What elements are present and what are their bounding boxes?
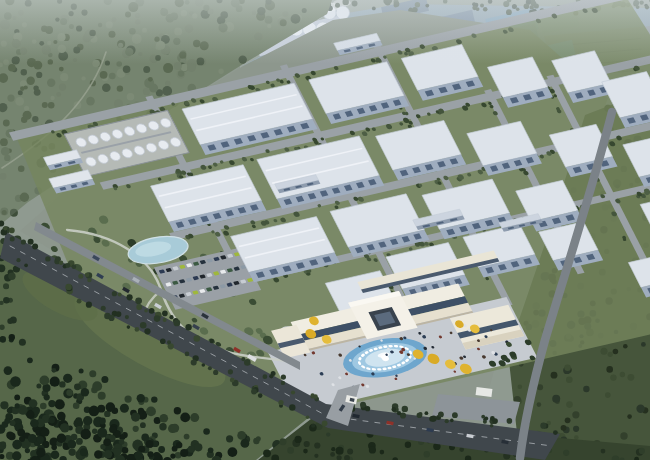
tree-dot [244, 359, 251, 366]
tree-dot [263, 449, 271, 457]
tree-dot [627, 414, 632, 419]
tree-dot [331, 447, 335, 451]
tree-dot [16, 258, 20, 262]
tree-dot [551, 372, 558, 379]
tree-dot [553, 430, 558, 435]
tree-dot [92, 381, 102, 391]
tree-dot [158, 446, 165, 453]
tree-dot [94, 450, 102, 458]
tree-dot [169, 315, 173, 319]
tree-dot [138, 408, 144, 414]
tree-dot [112, 291, 117, 296]
tree-dot [89, 370, 96, 377]
tree-dot [89, 406, 100, 417]
tree-dot [251, 389, 257, 395]
tree-dot [7, 318, 13, 324]
tree-dot [180, 413, 190, 423]
tree-dot [174, 320, 181, 327]
tree-dot [641, 342, 646, 347]
tree-dot [146, 440, 154, 448]
tree-dot [566, 401, 573, 408]
tree-dot [425, 411, 429, 415]
tree-dot [174, 407, 181, 414]
tree-dot [326, 433, 330, 437]
tree-dot [137, 394, 145, 402]
tree-dot [0, 401, 8, 409]
tree-dot [25, 448, 30, 453]
tree-dot [360, 402, 366, 408]
tree-dot [19, 436, 25, 442]
tree-dot [419, 412, 423, 416]
tree-dot [86, 302, 92, 308]
tree-dot [69, 449, 76, 456]
tree-dot [9, 228, 15, 234]
tree-dot [564, 364, 571, 371]
tree-dot [507, 418, 513, 424]
tree-dot [73, 402, 80, 409]
tree-dot [80, 448, 88, 456]
tree-dot [237, 431, 246, 440]
tree-dot [369, 446, 376, 453]
tree-dot [185, 324, 191, 330]
tree-dot [75, 417, 82, 424]
tree-dot [620, 372, 625, 377]
tree-dot [92, 429, 97, 434]
tree-dot [606, 366, 613, 373]
tree-dot [452, 412, 458, 418]
tree-dot [230, 378, 235, 383]
tree-dot [628, 374, 635, 381]
tree-dot [120, 404, 129, 413]
tree-dot [3, 283, 9, 289]
tree-dot [636, 405, 644, 413]
tree-dot [65, 284, 71, 290]
tree-dot [140, 322, 147, 329]
tree-dot [14, 395, 20, 401]
tree-dot [10, 420, 16, 426]
tree-dot [203, 428, 210, 435]
tree-dot [74, 383, 81, 390]
tree-dot [583, 386, 589, 392]
tree-dot [397, 411, 401, 415]
tree-dot [101, 306, 106, 311]
tree-dot [59, 381, 65, 387]
tree-dot [210, 339, 214, 343]
tree-dot [279, 438, 286, 445]
tree-dot [4, 366, 13, 375]
tree-dot [256, 436, 261, 441]
tree-dot [9, 334, 15, 340]
tree-dot [15, 403, 20, 408]
tree-dot [108, 315, 114, 321]
tree-dot [303, 449, 308, 454]
tree-dot [608, 352, 613, 357]
tree-dot [159, 423, 166, 430]
tree-dot [36, 448, 45, 457]
tree-dot [601, 449, 606, 454]
tree-dot [228, 447, 238, 457]
tree-dot [113, 448, 121, 456]
tree-dot [160, 339, 166, 345]
tree-dot [140, 422, 146, 428]
tree-dot [119, 439, 125, 445]
tree-dot [314, 442, 320, 448]
tree-dot [125, 396, 132, 403]
tree-dot [103, 439, 111, 447]
tree-dot [336, 447, 344, 455]
tree-dot [21, 239, 26, 244]
aerial-render-image [0, 0, 650, 460]
tree-dot [52, 368, 57, 373]
tree-dot [24, 263, 28, 267]
tree-dot [135, 327, 140, 332]
tree-dot [6, 432, 13, 439]
tree-dot [191, 359, 197, 365]
tree-dot [147, 451, 153, 457]
tree-dot [85, 273, 90, 278]
tree-dot [127, 325, 131, 329]
tree-dot [566, 376, 573, 383]
tree-dot [26, 411, 34, 419]
tree-dot [81, 388, 89, 396]
tree-dot [347, 449, 353, 455]
tree-dot [134, 451, 143, 460]
tree-dot [106, 402, 116, 412]
tree-dot [1, 442, 6, 447]
tree-dot [76, 438, 83, 445]
tree-dot [208, 448, 214, 454]
tree-dot [185, 352, 190, 357]
tree-dot [66, 390, 73, 397]
tree-dot [27, 357, 33, 363]
tree-dot [149, 308, 155, 314]
tree-dot [287, 447, 294, 454]
tree-dot [573, 426, 579, 432]
tree-dot [131, 413, 140, 422]
tree-dot [45, 256, 50, 261]
tree-dot [281, 381, 285, 385]
tree-dot [87, 278, 91, 282]
tree-dot [281, 375, 286, 380]
tree-dot [429, 416, 435, 422]
tree-dot [291, 390, 295, 394]
tree-dot [116, 311, 122, 317]
tree-dot [537, 384, 543, 390]
tree-dot [392, 407, 397, 412]
tree-dot [295, 436, 302, 443]
tree-dot [57, 434, 66, 443]
tree-dot [144, 328, 150, 334]
tree-dot [8, 273, 15, 280]
tree-dot [83, 416, 92, 425]
tree-dot [136, 304, 142, 310]
tree-dot [202, 363, 206, 367]
tree-dot [537, 402, 542, 407]
tree-dot [561, 425, 567, 431]
tree-dot [365, 406, 370, 411]
tree-dot [623, 344, 628, 349]
tree-dot [60, 423, 68, 431]
tree-dot [402, 406, 408, 412]
tree-dot [405, 442, 411, 448]
tree-dot [306, 416, 310, 420]
tree-dot [226, 435, 233, 442]
tree-dot [380, 450, 385, 455]
tree-dot [492, 418, 498, 424]
tree-dot [59, 261, 63, 265]
tree-dot [78, 274, 83, 279]
tree-dot [565, 417, 571, 423]
tree-dot [19, 339, 26, 346]
tree-dot [99, 418, 106, 425]
tree-dot [4, 418, 10, 424]
tree-dot [48, 400, 55, 407]
tree-dot [66, 263, 71, 268]
tree-dot [125, 315, 129, 319]
tree-dot [314, 454, 318, 458]
tree-dot [639, 448, 645, 454]
tree-dot [610, 374, 616, 380]
tree-dot [540, 423, 546, 429]
tree-dot [41, 428, 50, 437]
tree-dot [135, 297, 142, 304]
tree-dot [445, 419, 449, 423]
tree-dot [330, 452, 335, 457]
tree-dot [188, 445, 195, 452]
tree-dot [572, 411, 579, 418]
tree-dot [67, 440, 76, 449]
tree-dot [228, 369, 233, 374]
tree-dot [269, 374, 273, 378]
tree-dot [574, 435, 579, 440]
tree-dot [55, 399, 65, 409]
tree-dot [77, 299, 82, 304]
tree-dot [194, 335, 201, 342]
tree-dot [109, 426, 116, 433]
tree-dot [151, 396, 157, 402]
tree-dot [518, 384, 523, 389]
tree-dot [620, 432, 627, 439]
tree-dot [313, 394, 318, 399]
tree-dot [81, 429, 91, 439]
tree-dot [258, 393, 263, 398]
tree-dot [28, 239, 34, 245]
tree-dot [3, 297, 10, 304]
scene-canvas [0, 0, 650, 460]
tree-dot [36, 383, 41, 388]
tree-dot [170, 454, 175, 459]
tree-dot [144, 309, 148, 313]
tree-dot [311, 423, 315, 427]
tree-dot [118, 293, 122, 297]
tree-dot [101, 376, 108, 383]
tree-dot [162, 311, 168, 317]
tree-dot [278, 400, 283, 405]
tree-dot [172, 446, 178, 452]
tree-dot [44, 394, 50, 400]
tree-dot [72, 264, 77, 269]
tree-dot [63, 374, 72, 383]
tree-dot [104, 450, 112, 458]
tree-dot [483, 420, 487, 424]
tree-dot [613, 349, 619, 355]
tree-dot [57, 412, 66, 421]
tree-dot [304, 441, 310, 447]
tree-dot [322, 420, 328, 426]
tree-dot [51, 445, 57, 451]
tree-dot [208, 366, 212, 370]
tree-dot [190, 413, 199, 422]
tree-dot [133, 426, 139, 432]
tree-dot [241, 439, 250, 448]
tree-dot [98, 392, 106, 400]
tree-dot [49, 417, 55, 423]
tree-dot [171, 424, 180, 433]
tree-dot [154, 315, 161, 322]
tree-dot [160, 414, 169, 423]
tree-dot [438, 412, 444, 418]
tree-dot [122, 447, 128, 453]
tree-dot [459, 447, 464, 452]
tree-dot [28, 434, 37, 443]
tree-dot [37, 436, 44, 443]
tree-dot [289, 404, 295, 410]
tree-dot [30, 419, 39, 428]
tree-dot [424, 451, 430, 457]
tree-dot [605, 392, 611, 398]
tree-dot [40, 403, 47, 410]
atmosphere-fog [0, 0, 650, 64]
tree-dot [490, 424, 494, 428]
tree-dot [552, 395, 560, 403]
tree-dot [10, 376, 21, 387]
tree-dot [601, 348, 608, 355]
tree-dot [79, 369, 84, 374]
tree-dot [194, 443, 202, 451]
tree-dot [180, 449, 188, 457]
tree-dot [10, 236, 15, 241]
tree-dot [563, 450, 569, 456]
tree-dot [184, 434, 190, 440]
tree-dot [40, 376, 50, 386]
tree-dot [141, 434, 149, 442]
tree-dot [167, 340, 171, 344]
tree-dot [51, 450, 60, 459]
tree-dot [146, 407, 156, 417]
tree-dot [50, 377, 60, 387]
tree-dot [213, 370, 218, 375]
tree-dot [97, 428, 107, 438]
tree-dot [450, 419, 454, 423]
tree-dot [127, 294, 133, 300]
tree-dot [263, 374, 268, 379]
tree-dot [7, 408, 12, 413]
tree-dot [18, 405, 27, 414]
tree-dot [3, 226, 7, 230]
tree-dot [32, 243, 38, 249]
tree-dot [163, 318, 167, 322]
